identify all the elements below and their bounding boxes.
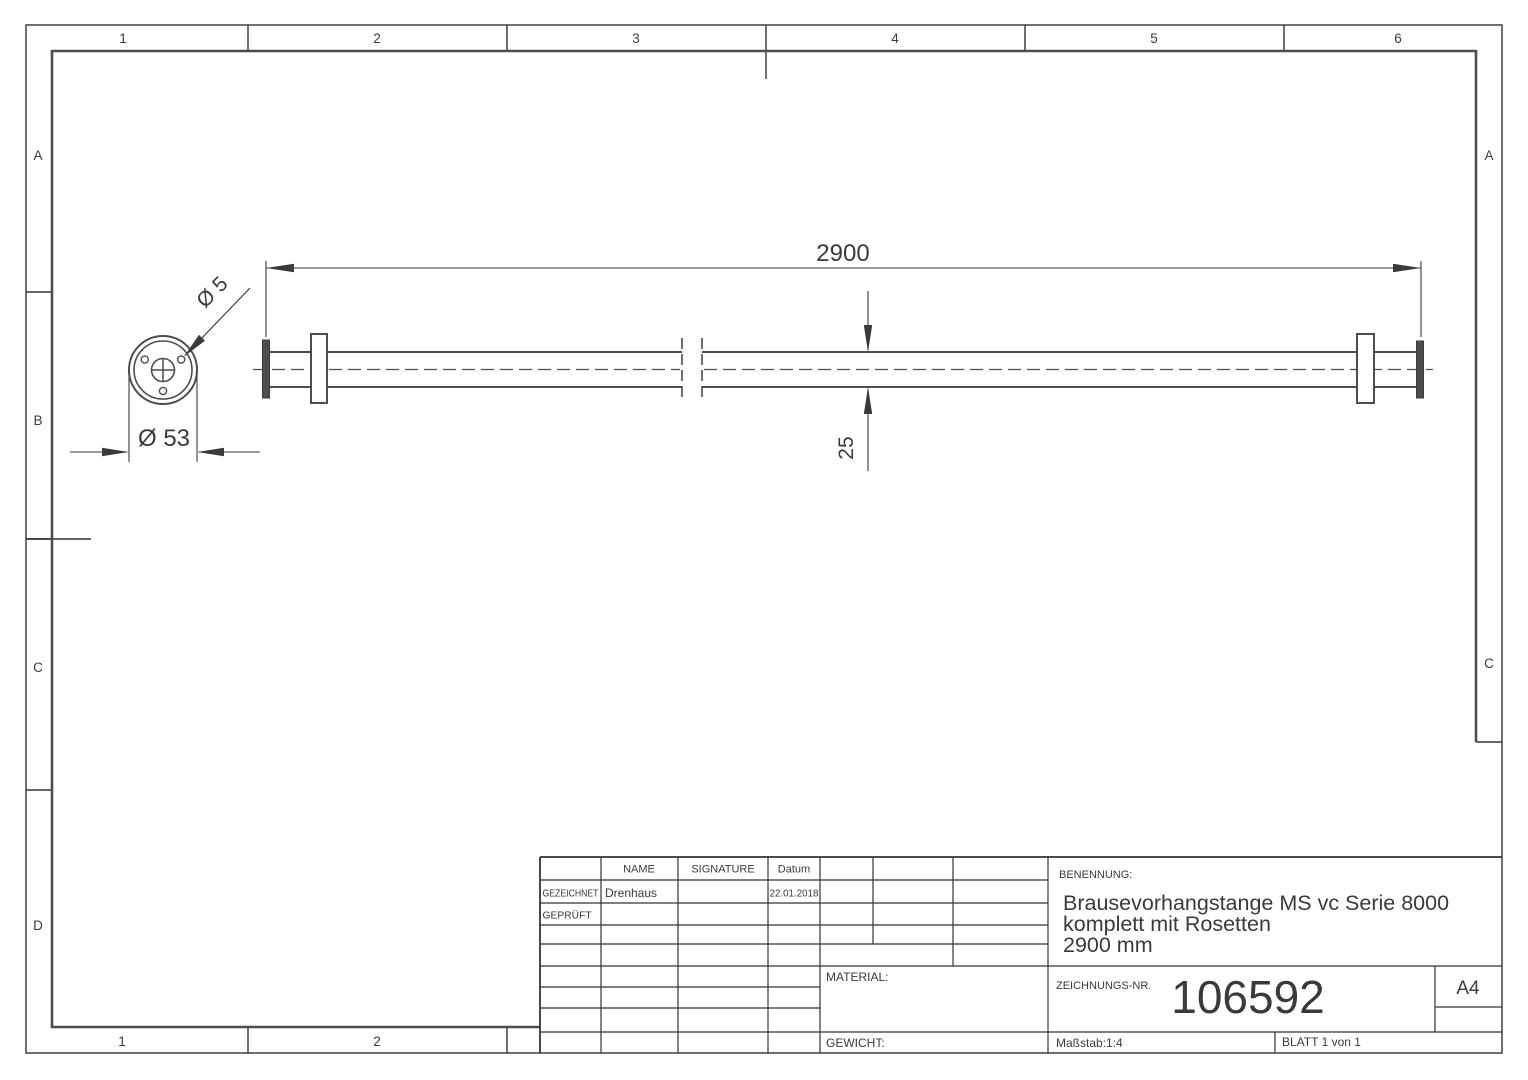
zone-right-a: A: [1484, 148, 1493, 163]
zone-top-6: 6: [1394, 31, 1402, 46]
zone-top-3: 3: [632, 31, 640, 46]
arrowhead-left: [102, 448, 129, 456]
rod-break-lines: [682, 338, 702, 399]
end-flange-left: [263, 340, 270, 398]
zone-left-d: D: [33, 918, 43, 933]
mounting-hole-bottom: [159, 387, 166, 394]
zone-bottom-1: 1: [118, 1034, 126, 1049]
mounting-hole-left: [141, 356, 148, 363]
drawn-name: Drenhaus: [605, 886, 657, 900]
zone-left-a: A: [33, 148, 42, 163]
dim-length-text: 2900: [816, 240, 869, 267]
rosette-collar-right: [1357, 334, 1374, 403]
dim-rod-dia: 25: [835, 291, 872, 471]
end-flange-right: [1417, 341, 1424, 398]
benennung-label: BENENNUNG:: [1059, 869, 1132, 881]
drawing-no-label: ZEICHNUNGS-NR.: [1056, 980, 1151, 992]
zone-left-b: B: [33, 413, 42, 428]
arrowhead-right: [197, 448, 224, 456]
part-title-line3: 2900 mm: [1063, 933, 1153, 957]
zone-top-2: 2: [373, 31, 381, 46]
rosette-collar-left: [311, 334, 327, 403]
rod-side-view: [253, 334, 1433, 403]
zone-top-5: 5: [1150, 31, 1158, 46]
dim-length: 2900: [266, 240, 1421, 337]
dim-hole-dia-text: Ø 5: [192, 272, 232, 312]
arrowhead-right: [1393, 264, 1421, 272]
drawn-date: 22.01.2018: [770, 889, 819, 900]
title-block: [540, 857, 1502, 1053]
header-name: NAME: [623, 864, 655, 876]
arrowhead-bottom: [864, 387, 872, 414]
drawn-label: GEZEICHNET: [543, 889, 600, 900]
scale-label: Maßstab:1:4: [1056, 1036, 1123, 1050]
dim-rod-dia-text: 25: [835, 436, 858, 459]
zone-bottom-2: 2: [373, 1034, 381, 1049]
zone-top-4: 4: [891, 31, 899, 46]
dim-rosette-dia-text: Ø 53: [138, 425, 190, 452]
drawing-sheet: 1 2 3 4 5 6 1 2 A B C D A C Ø 5: [0, 0, 1528, 1080]
zone-left-c: C: [33, 660, 43, 675]
paper-format: A4: [1456, 978, 1480, 999]
dim-hole-dia: Ø 5: [184, 272, 250, 356]
material-label: MATERIAL:: [826, 970, 888, 984]
dim-rosette-dia: Ø 53: [70, 425, 260, 456]
sheet-info-label: BLATT 1 von 1: [1282, 1035, 1361, 1049]
header-date: Datum: [778, 864, 810, 876]
checked-label: GEPRÜFT: [543, 910, 593, 922]
technical-drawing-canvas: 1 2 3 4 5 6 1 2 A B C D A C Ø 5: [0, 0, 1528, 1080]
arrowhead-left: [266, 264, 294, 272]
mounting-hole-right: [178, 356, 185, 363]
drawing-number: 106592: [1171, 971, 1325, 1023]
weight-label: GEWICHT:: [826, 1036, 885, 1050]
zone-top-1: 1: [119, 31, 127, 46]
arrowhead-top: [864, 325, 872, 352]
zone-right-c: C: [1484, 656, 1494, 671]
header-signature: SIGNATURE: [691, 864, 754, 876]
title-block-text: NAME SIGNATURE Datum GEZEICHNET Drenhaus…: [543, 864, 1481, 1051]
